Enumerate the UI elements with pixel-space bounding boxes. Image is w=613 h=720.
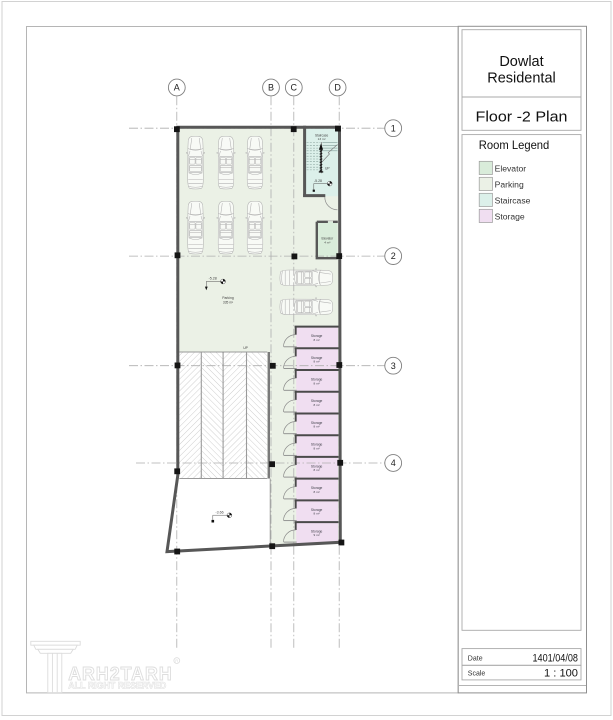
svg-text:3: 3 xyxy=(391,361,396,371)
svg-text:Dowlat: Dowlat xyxy=(499,54,543,70)
svg-text:1 : 100: 1 : 100 xyxy=(544,668,578,680)
svg-text:13 m²: 13 m² xyxy=(318,137,326,141)
svg-text:D: D xyxy=(334,83,341,93)
svg-text:C: C xyxy=(291,83,298,93)
svg-text:Date: Date xyxy=(468,655,483,662)
svg-text:335 m²: 335 m² xyxy=(223,300,234,304)
svg-text:UP: UP xyxy=(243,346,248,350)
svg-text:8 m²: 8 m² xyxy=(314,512,320,516)
svg-text:Staircase: Staircase xyxy=(495,196,531,206)
svg-text:8 m²: 8 m² xyxy=(314,447,320,451)
svg-text:8 m²: 8 m² xyxy=(314,381,320,385)
svg-text:-5.28: -5.28 xyxy=(209,277,217,281)
svg-text:8 m²: 8 m² xyxy=(314,360,320,364)
svg-text:A: A xyxy=(174,83,180,93)
svg-text:Elevator: Elevator xyxy=(495,164,527,174)
svg-text:8 m²: 8 m² xyxy=(314,490,320,494)
svg-text:Scale: Scale xyxy=(468,671,486,678)
svg-text:8 m²: 8 m² xyxy=(314,403,320,407)
svg-text:8 m²: 8 m² xyxy=(314,468,320,472)
svg-text:4 m²: 4 m² xyxy=(324,241,330,245)
svg-text:Room Legend: Room Legend xyxy=(479,138,550,152)
svg-text:Parking: Parking xyxy=(495,180,524,190)
svg-text:4: 4 xyxy=(391,458,396,468)
svg-text:Floor -2 Plan: Floor -2 Plan xyxy=(476,109,568,125)
svg-text:ALL RIGHT RESERVED: ALL RIGHT RESERVED xyxy=(68,681,166,691)
svg-text:2: 2 xyxy=(391,251,396,261)
svg-text:R: R xyxy=(175,658,178,663)
svg-text:1: 1 xyxy=(391,123,396,133)
svg-text:9 m²: 9 m² xyxy=(314,533,320,537)
svg-text:Residental: Residental xyxy=(487,71,556,87)
svg-text:UP: UP xyxy=(325,166,330,170)
svg-text:-5.28: -5.28 xyxy=(314,179,322,183)
svg-text:Storage: Storage xyxy=(495,212,525,222)
svg-text:8 m²: 8 m² xyxy=(314,425,320,429)
svg-text:-3.66: -3.66 xyxy=(215,511,223,515)
svg-text:1401/04/08: 1401/04/08 xyxy=(533,653,579,665)
svg-text:8 m²: 8 m² xyxy=(314,338,320,342)
svg-text:B: B xyxy=(268,83,274,93)
